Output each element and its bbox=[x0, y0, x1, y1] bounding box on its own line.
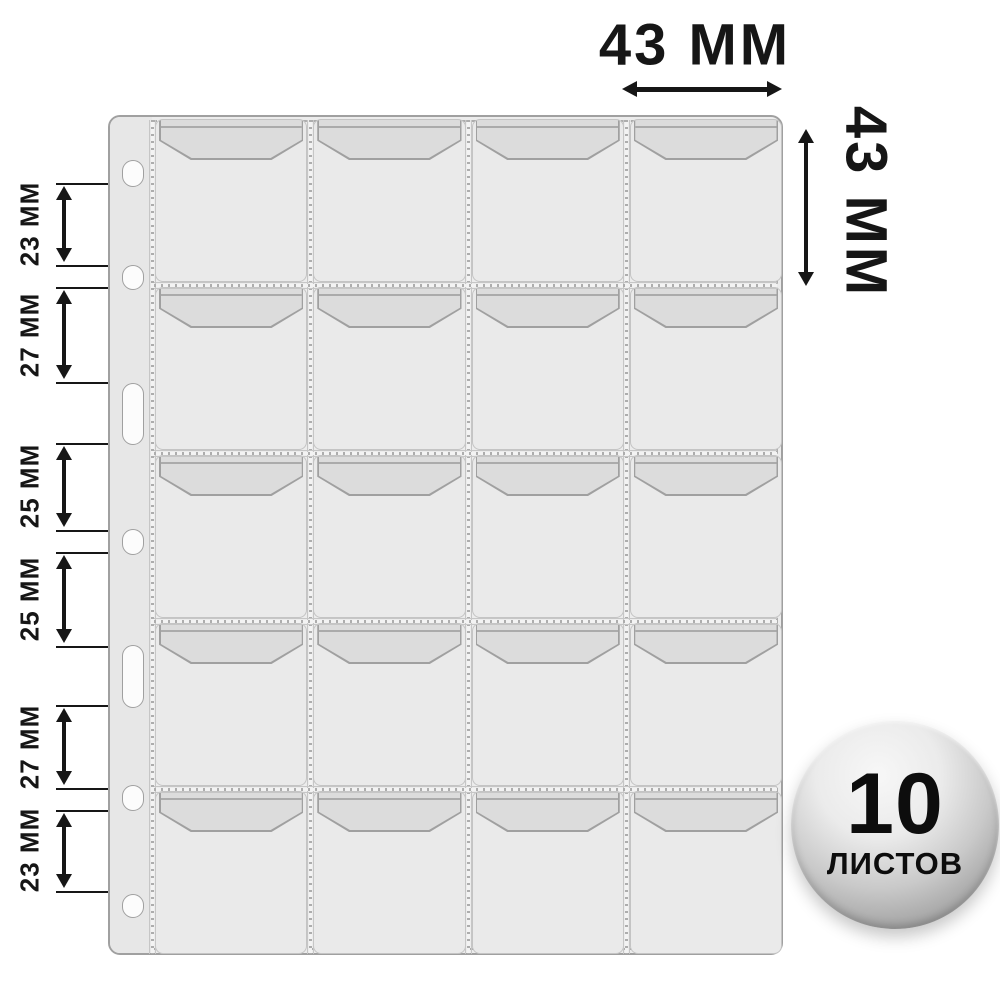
pocket-body bbox=[155, 623, 307, 786]
binder-slot bbox=[122, 645, 144, 708]
arrowhead-down-icon bbox=[56, 874, 72, 888]
coin-pocket bbox=[469, 621, 627, 789]
stitch-seam-vertical bbox=[623, 120, 630, 954]
pocket-flap bbox=[634, 120, 778, 160]
coin-pocket bbox=[310, 621, 468, 789]
pocket-body bbox=[472, 287, 624, 450]
arrowhead-down-icon bbox=[56, 771, 72, 785]
pocket-body bbox=[630, 287, 782, 450]
hole-spacing-label-5: 27 ММ bbox=[15, 705, 46, 789]
arrow-line bbox=[62, 460, 67, 513]
pocket-height-label: 43 ММ bbox=[833, 106, 900, 298]
arrowhead-right-icon bbox=[767, 81, 782, 97]
coin-pocket bbox=[152, 789, 310, 957]
stitch-seam-horizontal bbox=[154, 450, 777, 457]
coin-pocket bbox=[469, 789, 627, 957]
coin-pocket bbox=[152, 453, 310, 621]
stitch-seam-horizontal bbox=[154, 618, 777, 625]
pocket-body bbox=[630, 455, 782, 618]
pocket-body bbox=[472, 455, 624, 618]
pocket-body bbox=[313, 623, 465, 786]
arrowhead-up-icon bbox=[56, 555, 72, 569]
pocket-body bbox=[472, 791, 624, 954]
coin-pocket bbox=[469, 453, 627, 621]
binder-strip bbox=[110, 117, 152, 953]
pocket-flap bbox=[476, 624, 620, 664]
pocket-flap bbox=[317, 792, 461, 832]
pocket-body bbox=[313, 287, 465, 450]
hole-spacing-arrow-1 bbox=[55, 186, 73, 262]
stitch-seam-horizontal bbox=[154, 282, 777, 289]
arrow-line bbox=[637, 87, 767, 92]
pocket-body bbox=[630, 791, 782, 954]
hole-spacing-arrow-4 bbox=[55, 555, 73, 643]
hole-spacing-arrow-6 bbox=[55, 813, 73, 888]
pocket-flap bbox=[634, 288, 778, 328]
pocket-width-label: 43 ММ bbox=[599, 12, 791, 79]
pocket-body bbox=[472, 119, 624, 282]
arrow-line bbox=[62, 569, 67, 629]
pocket-flap bbox=[634, 456, 778, 496]
pocket-body bbox=[313, 119, 465, 282]
pocket-flap bbox=[476, 792, 620, 832]
arrow-line bbox=[62, 722, 67, 771]
pocket-flap bbox=[159, 288, 303, 328]
binder-hole bbox=[122, 785, 144, 811]
coin-pocket bbox=[310, 789, 468, 957]
pocket-flap bbox=[159, 624, 303, 664]
binder-hole bbox=[122, 894, 144, 918]
pocket-flap bbox=[317, 456, 461, 496]
arrow-line bbox=[62, 827, 67, 874]
hole-spacing-arrow-2 bbox=[55, 290, 73, 379]
pocket-flap bbox=[317, 288, 461, 328]
hole-spacing-label-1: 23 ММ bbox=[15, 182, 46, 266]
binder-hole bbox=[122, 529, 144, 555]
pocket-body bbox=[472, 623, 624, 786]
coin-pocket bbox=[152, 285, 310, 453]
pocket-flap bbox=[317, 624, 461, 664]
pocket-flap bbox=[476, 120, 620, 160]
sheet-count-badge: 10 ЛИСТОВ bbox=[791, 721, 999, 929]
coin-pocket bbox=[310, 285, 468, 453]
pocket-flap bbox=[159, 792, 303, 832]
arrowhead-down-icon bbox=[798, 272, 814, 286]
pocket-width-arrow bbox=[622, 81, 782, 97]
arrow-line bbox=[804, 143, 809, 272]
product-image-canvas: 43 ММ 43 ММ 23 ММ 27 ММ 25 ММ 25 ММ 27 М… bbox=[0, 0, 1000, 1000]
coin-pocket bbox=[152, 117, 310, 285]
hole-spacing-label-6: 23 ММ bbox=[15, 808, 46, 892]
stitch-seam-horizontal bbox=[154, 786, 777, 793]
pocket-flap bbox=[159, 456, 303, 496]
arrowhead-up-icon bbox=[56, 290, 72, 304]
arrowhead-up-icon bbox=[56, 186, 72, 200]
coin-pocket bbox=[627, 789, 785, 957]
pocket-flap bbox=[317, 120, 461, 160]
arrow-line bbox=[62, 304, 67, 365]
coin-pocket bbox=[627, 621, 785, 789]
stitch-seam-vertical bbox=[307, 120, 314, 954]
pocket-body bbox=[155, 791, 307, 954]
stitch-seam-vertical bbox=[465, 120, 472, 954]
pocket-body bbox=[313, 791, 465, 954]
coin-pocket bbox=[627, 285, 785, 453]
pocket-body bbox=[155, 287, 307, 450]
pocket-height-arrow bbox=[797, 129, 815, 286]
hole-spacing-label-4: 25 ММ bbox=[15, 557, 46, 641]
coin-pocket bbox=[627, 117, 785, 285]
arrowhead-down-icon bbox=[56, 365, 72, 379]
arrowhead-down-icon bbox=[56, 513, 72, 527]
pocket-flap bbox=[634, 624, 778, 664]
coin-pocket bbox=[152, 621, 310, 789]
pocket-body bbox=[155, 119, 307, 282]
album-sheet bbox=[108, 115, 783, 955]
pocket-body bbox=[630, 623, 782, 786]
arrowhead-down-icon bbox=[56, 248, 72, 262]
badge-count: 10 bbox=[846, 768, 944, 841]
arrowhead-left-icon bbox=[622, 81, 637, 97]
arrowhead-down-icon bbox=[56, 629, 72, 643]
hole-spacing-label-3: 25 ММ bbox=[15, 444, 46, 528]
badge-unit: ЛИСТОВ bbox=[827, 846, 963, 882]
binder-slot bbox=[122, 383, 144, 445]
pocket-flap bbox=[476, 288, 620, 328]
coin-pocket bbox=[469, 285, 627, 453]
arrow-line bbox=[62, 200, 67, 248]
hole-spacing-arrow-3 bbox=[55, 446, 73, 527]
arrowhead-up-icon bbox=[56, 708, 72, 722]
arrowhead-up-icon bbox=[56, 813, 72, 827]
binder-hole bbox=[122, 160, 144, 187]
stitch-seam-vertical bbox=[149, 120, 156, 954]
hole-spacing-arrow-5 bbox=[55, 708, 73, 785]
pocket-flap bbox=[159, 120, 303, 160]
arrowhead-up-icon bbox=[56, 446, 72, 460]
pocket-flap bbox=[634, 792, 778, 832]
coin-pocket bbox=[469, 117, 627, 285]
pocket-flap bbox=[476, 456, 620, 496]
coin-pocket bbox=[310, 453, 468, 621]
binder-hole bbox=[122, 265, 144, 290]
hole-spacing-label-2: 27 ММ bbox=[15, 293, 46, 377]
coin-pocket bbox=[310, 117, 468, 285]
coin-pocket bbox=[627, 453, 785, 621]
pocket-body bbox=[630, 119, 782, 282]
pocket-body bbox=[155, 455, 307, 618]
arrowhead-up-icon bbox=[798, 129, 814, 143]
pocket-body bbox=[313, 455, 465, 618]
